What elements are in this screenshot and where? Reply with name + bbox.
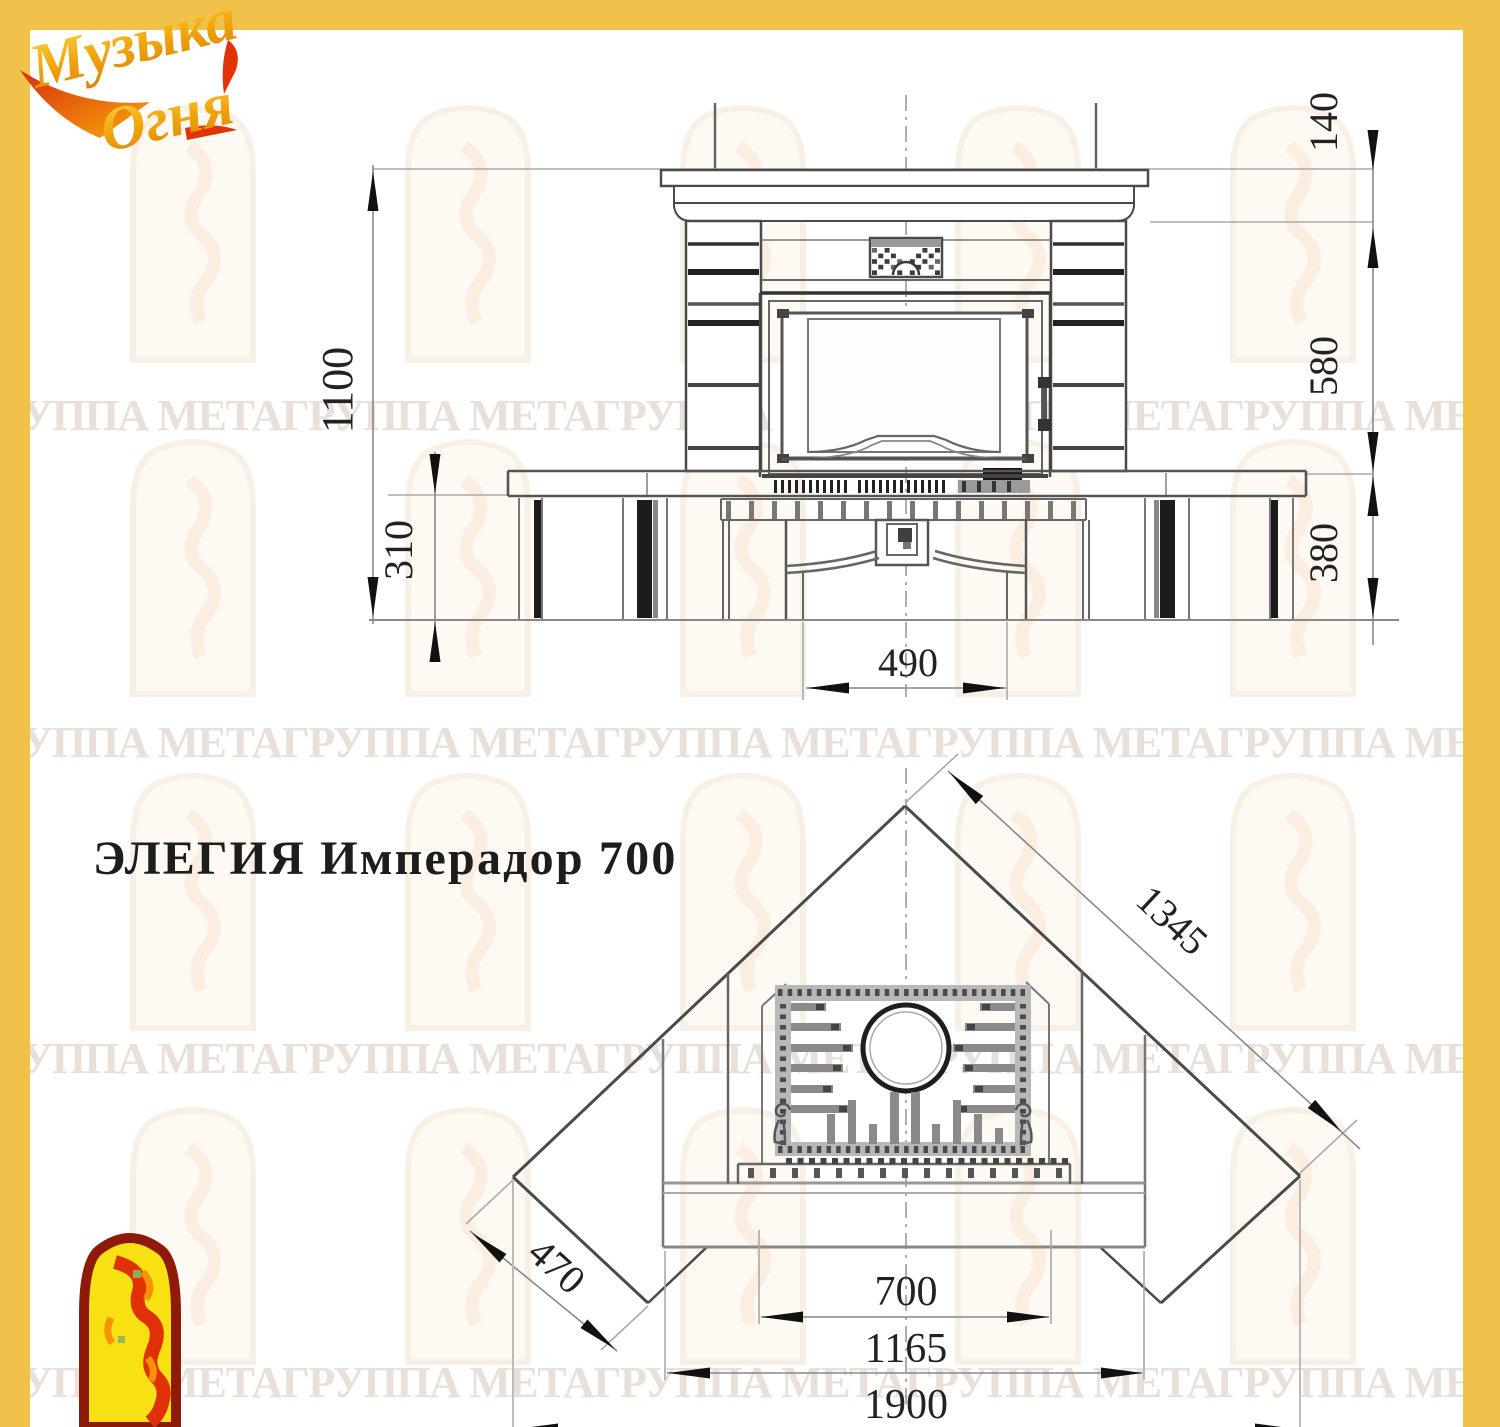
svg-text:ГРУППА МЕТАГРУППА МЕТАГРУППА М: ГРУППА МЕТАГРУППА МЕТАГРУППА МЕТАГРУППА … [0, 1034, 1500, 1083]
svg-text:1900: 1900 [864, 1382, 948, 1427]
svg-text:1165: 1165 [865, 1326, 947, 1372]
svg-text:ЭЛЕГИЯ Имперадор 700: ЭЛЕГИЯ Имперадор 700 [93, 832, 678, 885]
svg-text:580: 580 [1301, 336, 1346, 396]
svg-text:1100: 1100 [313, 347, 362, 433]
svg-text:490: 490 [878, 640, 938, 685]
svg-text:380: 380 [1301, 523, 1346, 583]
svg-text:ГРУППА МЕТАГРУППА МЕТАГРУППА М: ГРУППА МЕТАГРУППА МЕТАГРУППА МЕТАГРУППА … [0, 718, 1500, 767]
svg-text:ГРУППА МЕТАГРУППА МЕТАГРУППА М: ГРУППА МЕТАГРУППА МЕТАГРУППА МЕТАГРУППА … [0, 1358, 1500, 1407]
svg-text:310: 310 [376, 520, 421, 580]
svg-text:140: 140 [1301, 92, 1346, 152]
svg-text:700: 700 [875, 1269, 938, 1315]
